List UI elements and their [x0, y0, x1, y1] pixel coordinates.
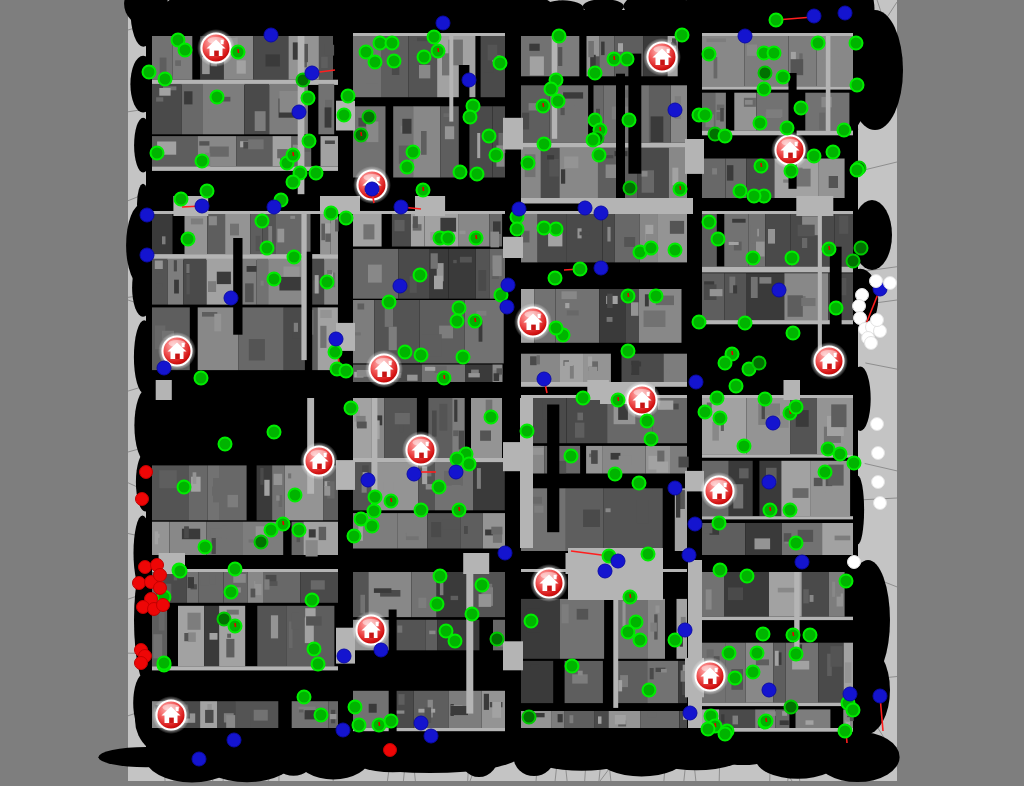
agent-blue: [337, 649, 351, 663]
home-marker[interactable]: [152, 696, 190, 734]
agent-green: [431, 598, 444, 611]
agent-green: [349, 701, 362, 714]
agent-green: [303, 135, 316, 148]
home-marker[interactable]: [402, 431, 440, 469]
agent-green: [201, 185, 214, 198]
agent-green: [490, 149, 503, 162]
agent-green: [719, 728, 732, 741]
agent-green: [550, 322, 563, 335]
agent-dark-green: [491, 633, 504, 646]
agent-green: [315, 709, 328, 722]
agent-blue: [838, 6, 852, 20]
agent-red: [140, 466, 153, 479]
agent-blue: [678, 623, 692, 637]
agent-blue: [766, 416, 780, 430]
agent-green: [457, 351, 470, 364]
agent-green: [840, 575, 853, 588]
agent-green: [729, 672, 742, 685]
agent-green: [485, 411, 498, 424]
agent-blue: [594, 261, 608, 275]
agent-green: [268, 273, 281, 286]
agent-green: [182, 233, 195, 246]
agent-red: [133, 577, 146, 590]
agent-dark-green: [523, 711, 536, 724]
agent-green: [511, 223, 524, 236]
agent-green: [641, 415, 654, 428]
agent-green: [175, 193, 188, 206]
agent-blue: [393, 279, 407, 293]
agent-green: [574, 263, 587, 276]
agent-green: [577, 392, 590, 405]
agent-blue: [512, 202, 526, 216]
agent-green: [848, 457, 861, 470]
agent-red: [154, 582, 167, 595]
agent-dark-green: [759, 67, 772, 80]
agent-green: [593, 149, 606, 162]
agent-green: [757, 628, 770, 641]
agent-green: [386, 37, 399, 50]
agent-blue: [795, 555, 809, 569]
agent-green: [471, 168, 484, 181]
agent-blue: [227, 733, 241, 747]
agent-green: [738, 440, 751, 453]
agent-green: [770, 14, 783, 27]
agent-green: [289, 489, 302, 502]
agent-green: [699, 406, 712, 419]
agent-green: [702, 723, 715, 736]
agent-green: [838, 124, 851, 137]
agent-green: [622, 626, 635, 639]
agent-green: [676, 29, 689, 42]
agent-green: [159, 73, 172, 86]
agent-blue: [689, 375, 703, 389]
agent-green: [310, 167, 323, 180]
agent-green: [643, 684, 656, 697]
agent-green: [199, 541, 212, 554]
agent-blue: [195, 199, 209, 213]
agent-green: [759, 393, 772, 406]
agent-white: [853, 300, 866, 313]
home-marker[interactable]: [623, 381, 661, 419]
agent-green: [366, 520, 379, 533]
agent-green: [158, 657, 171, 670]
home-marker[interactable]: [810, 342, 848, 380]
agent-dark-green: [785, 701, 798, 714]
agent-blue: [292, 105, 306, 119]
agent-green: [609, 468, 622, 481]
agent-green: [669, 634, 682, 647]
home-marker[interactable]: [643, 38, 681, 76]
agent-green: [418, 51, 431, 64]
agent-green: [407, 146, 420, 159]
agent-blue: [264, 28, 278, 42]
agent-green: [340, 365, 353, 378]
agent-green: [302, 92, 315, 105]
agent-green: [428, 31, 441, 44]
agent-green: [650, 290, 663, 303]
agent-blue: [594, 206, 608, 220]
agent-green: [369, 56, 382, 69]
agent-green: [623, 114, 636, 127]
agent-green: [521, 425, 534, 438]
home-marker[interactable]: [300, 442, 338, 480]
agent-blue: [157, 361, 171, 375]
agent-green: [739, 317, 752, 330]
agent-green: [747, 666, 760, 679]
agent-green: [565, 450, 578, 463]
agent-blue: [668, 103, 682, 117]
agent-green: [308, 643, 321, 656]
agent-green: [777, 71, 790, 84]
agent-green: [552, 95, 565, 108]
agent-green: [525, 615, 538, 628]
agent-green: [747, 252, 760, 265]
agent-green: [699, 109, 712, 122]
agent-blue: [501, 278, 515, 292]
agent-green: [714, 412, 727, 425]
agent-green: [229, 563, 242, 576]
agent-green: [714, 564, 727, 577]
agent-green: [321, 276, 334, 289]
agent-green: [494, 57, 507, 70]
agent-white: [848, 556, 861, 569]
agent-green: [464, 111, 477, 124]
agent-green: [211, 91, 224, 104]
home-marker[interactable]: [197, 29, 235, 67]
agent-green: [265, 524, 278, 537]
agent-green: [451, 315, 464, 328]
agent-green: [781, 122, 794, 135]
agent-green: [306, 594, 319, 607]
agent-green: [804, 629, 817, 642]
agent-green: [225, 586, 238, 599]
agent-green: [645, 242, 658, 255]
agent-green: [741, 570, 754, 583]
agent-green: [819, 466, 832, 479]
agent-green: [338, 109, 351, 122]
agent-green: [703, 48, 716, 61]
agent-white: [872, 447, 885, 460]
agent-green: [847, 704, 860, 717]
agent-blue: [394, 200, 408, 214]
agent-green: [621, 53, 634, 66]
agent-blue: [668, 481, 682, 495]
agent-red: [136, 493, 149, 506]
agent-blue: [537, 372, 551, 386]
agent-green: [634, 634, 647, 647]
agent-blue: [772, 283, 786, 297]
agent-white: [874, 497, 887, 510]
agent-green: [851, 164, 864, 177]
agent-green: [723, 647, 736, 660]
agent-blue: [449, 465, 463, 479]
agent-green: [622, 345, 635, 358]
agent-green: [790, 648, 803, 661]
agent-blue: [683, 706, 697, 720]
agent-green: [293, 524, 306, 537]
agent-green: [850, 37, 863, 50]
agent-green: [730, 380, 743, 393]
agent-green: [795, 102, 808, 115]
agent-blue: [688, 517, 702, 531]
agent-blue: [436, 16, 450, 30]
agent-green: [758, 83, 771, 96]
agent-green: [388, 55, 401, 68]
agent-green: [219, 438, 232, 451]
home-marker[interactable]: [691, 657, 729, 695]
agent-green: [449, 635, 462, 648]
agent-green: [538, 222, 551, 235]
agent-green: [434, 570, 447, 583]
agent-blue: [762, 683, 776, 697]
agent-green: [399, 346, 412, 359]
agent-green: [353, 719, 366, 732]
agent-blue: [224, 291, 238, 305]
agent-green: [711, 392, 724, 405]
agent-white: [865, 337, 878, 350]
agent-green: [178, 481, 191, 494]
agent-green: [790, 537, 803, 550]
agent-dark-green: [855, 242, 868, 255]
agent-dark-green: [847, 255, 860, 268]
home-marker[interactable]: [700, 472, 738, 510]
agent-green: [453, 302, 466, 315]
agent-green: [368, 505, 381, 518]
agent-blue: [578, 201, 592, 215]
agent-blue: [843, 687, 857, 701]
agent-blue: [140, 208, 154, 222]
agent-green: [451, 453, 464, 466]
agent-green: [549, 272, 562, 285]
simulation-viewport[interactable]: [0, 0, 1024, 786]
agent-blue: [738, 29, 752, 43]
agent-green: [256, 215, 269, 228]
agent-blue: [305, 66, 319, 80]
agent-blue: [329, 332, 343, 346]
agent-green: [268, 426, 281, 439]
agent-blue: [192, 752, 206, 766]
agent-green: [784, 504, 797, 517]
agent-green: [312, 658, 325, 671]
agent-green: [325, 207, 338, 220]
agent-white: [870, 275, 883, 288]
agent-blue: [267, 200, 281, 214]
agent-green: [785, 165, 798, 178]
home-marker[interactable]: [365, 350, 403, 388]
agent-green: [808, 150, 821, 163]
agent-blue: [807, 9, 821, 23]
agent-green: [174, 565, 187, 578]
agent-red: [135, 657, 148, 670]
agent-white: [871, 314, 884, 327]
agent-green: [851, 79, 864, 92]
agent-green: [712, 233, 725, 246]
agent-green: [719, 130, 732, 143]
agent-green: [415, 504, 428, 517]
agent-green: [261, 242, 274, 255]
agent-dark-green: [255, 536, 268, 549]
agent-green: [345, 402, 358, 415]
home-marker[interactable]: [771, 131, 809, 169]
agent-green: [522, 157, 535, 170]
agent-green: [703, 216, 716, 229]
agent-green: [790, 401, 803, 414]
agent-green: [633, 477, 646, 490]
agent-blue: [498, 546, 512, 560]
agent-green: [401, 161, 414, 174]
agent-green: [713, 517, 726, 530]
agent-blue: [365, 182, 379, 196]
agent-green: [642, 548, 655, 561]
agent-green: [786, 252, 799, 265]
agent-white: [872, 476, 885, 489]
agent-green: [812, 37, 825, 50]
agent-green: [329, 346, 342, 359]
agent-green: [143, 66, 156, 79]
agent-green: [538, 138, 551, 151]
agent-blue: [462, 73, 476, 87]
home-marker[interactable]: [514, 303, 552, 341]
agent-green: [587, 134, 600, 147]
agent-green: [179, 44, 192, 57]
agent-blue: [407, 467, 421, 481]
agent-red: [157, 599, 170, 612]
agent-dark-green: [363, 111, 376, 124]
agent-green: [827, 146, 840, 159]
agent-green: [589, 67, 602, 80]
agent-green: [287, 176, 300, 189]
agent-green: [385, 715, 398, 728]
agent-green: [383, 296, 396, 309]
agent-green: [196, 155, 209, 168]
agent-green: [669, 244, 682, 257]
home-marker[interactable]: [530, 564, 568, 602]
agent-green: [340, 212, 353, 225]
agent-green: [348, 530, 361, 543]
agent-green: [751, 647, 764, 660]
agent-green: [645, 433, 658, 446]
agent-green: [734, 185, 747, 198]
agent-green: [553, 30, 566, 43]
agent-green: [483, 130, 496, 143]
agent-blue: [598, 564, 612, 578]
agent-green: [768, 47, 781, 60]
agent-blue: [762, 475, 776, 489]
agent-green: [476, 579, 489, 592]
agent-white: [884, 277, 897, 290]
agent-green: [719, 357, 732, 370]
agent-red: [154, 569, 167, 582]
agent-red: [384, 744, 397, 757]
agent-green: [288, 251, 301, 264]
agent-green: [433, 481, 446, 494]
agent-green: [834, 448, 847, 461]
agent-blue: [336, 723, 350, 737]
agent-green: [369, 491, 382, 504]
agent-green: [454, 166, 467, 179]
agent-blue: [424, 729, 438, 743]
agent-green: [466, 608, 479, 621]
agent-blue: [140, 248, 154, 262]
agent-green: [151, 147, 164, 160]
agent-green: [415, 349, 428, 362]
agent-green: [414, 269, 427, 282]
agent-blue: [873, 689, 887, 703]
agent-green: [693, 316, 706, 329]
agent-blue: [500, 300, 514, 314]
agent-green: [442, 232, 455, 245]
agent-green: [787, 327, 800, 340]
agent-green: [195, 372, 208, 385]
agent-blue: [414, 716, 428, 730]
agent-green: [830, 302, 843, 315]
agent-green: [545, 83, 558, 96]
agent-blue: [682, 548, 696, 562]
agent-dark-green: [753, 357, 766, 370]
agent-green: [550, 223, 563, 236]
agent-blue: [361, 473, 375, 487]
agent-red: [139, 561, 152, 574]
agent-green: [748, 190, 761, 203]
agent-white: [871, 418, 884, 431]
city-map-canvas: [0, 0, 1024, 786]
agent-green: [754, 117, 767, 130]
agent-blue: [611, 554, 625, 568]
agent-green: [298, 691, 311, 704]
agent-blue: [374, 643, 388, 657]
agent-green: [566, 660, 579, 673]
agent-green: [839, 725, 852, 738]
agent-green: [342, 90, 355, 103]
agent-dark-green: [624, 182, 637, 195]
